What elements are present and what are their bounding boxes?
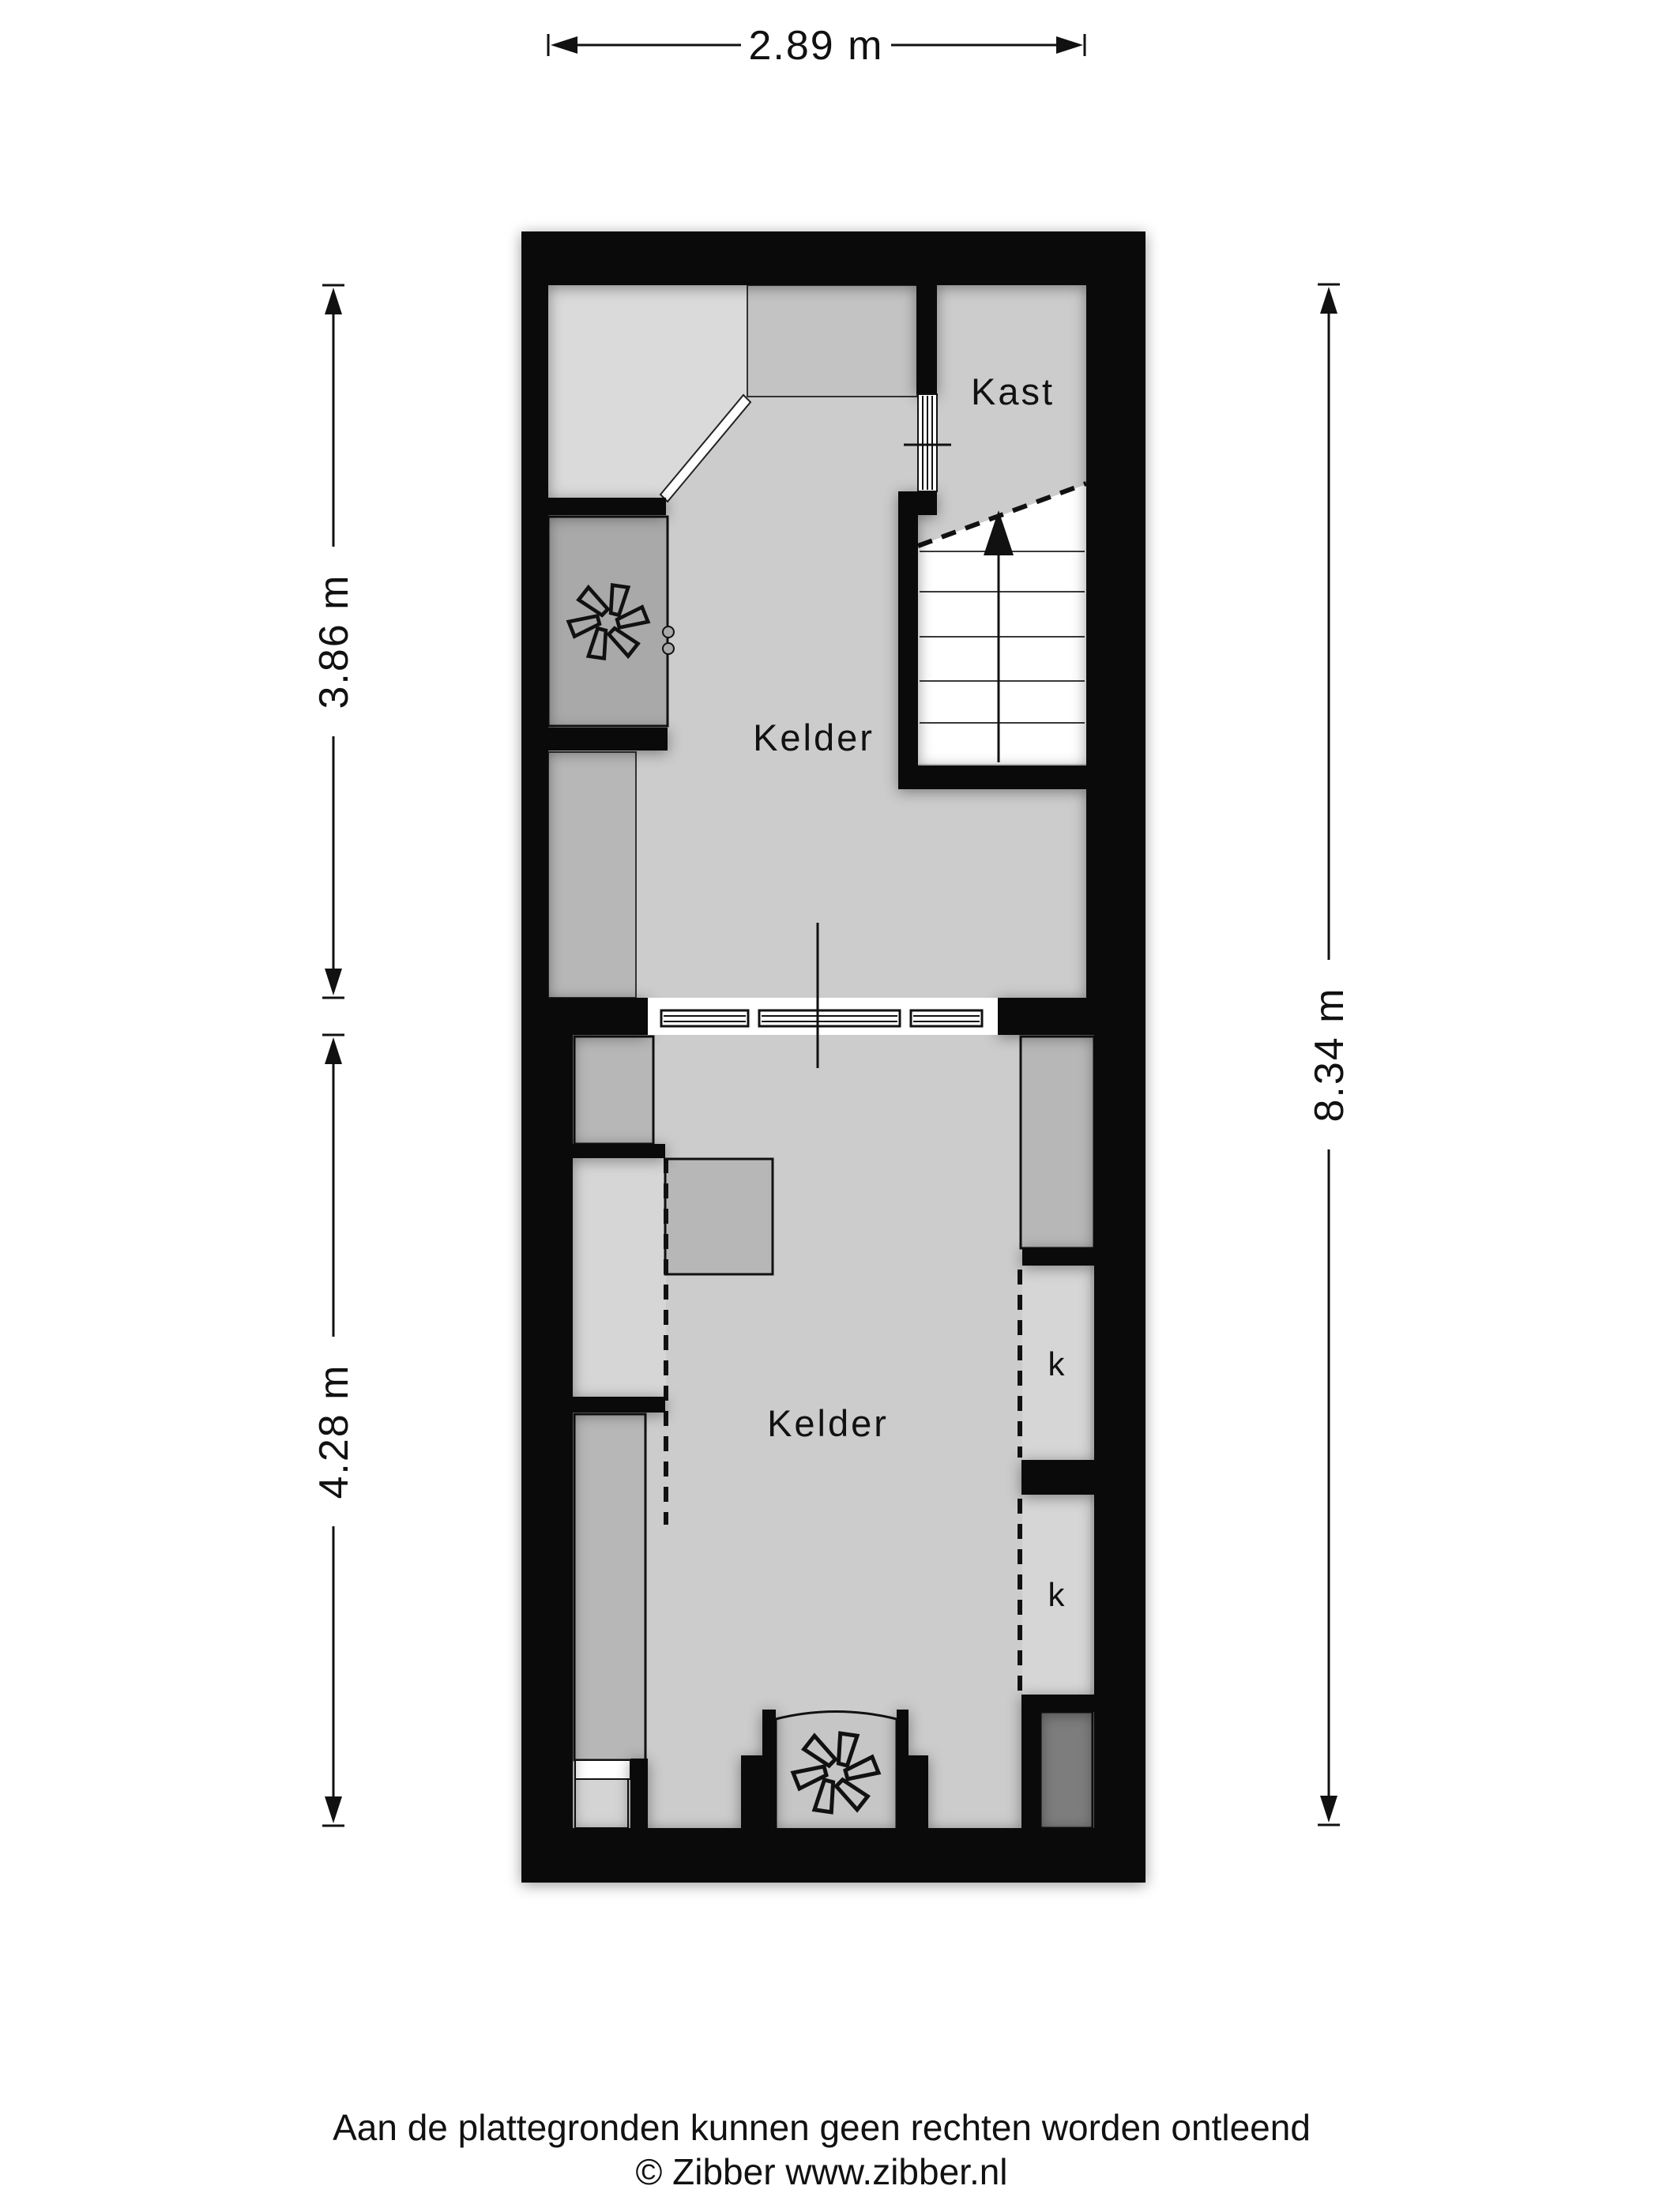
room-label-closet-lower: k — [1048, 1576, 1066, 1613]
footer-disclaimer: Aan de plattegronden kunnen geen rechten… — [333, 2107, 1311, 2148]
outer-wall-left-upper — [521, 285, 548, 998]
room-label-kelder-lower: Kelder — [767, 1402, 889, 1444]
dimension-left-upper: 3.86 m — [311, 285, 357, 998]
dimension-left-lower: 4.28 m — [311, 1035, 357, 1826]
dimension-top: 2.89 m — [548, 23, 1085, 69]
hinge-bump — [663, 643, 674, 654]
counter-strip-left — [574, 1414, 645, 1760]
page: Kelder Kast Kelder k k 2.89 m 3.86 m 4.2… — [0, 0, 1659, 2212]
fan-room-top-wall — [521, 498, 666, 515]
outer-wall-left-lower — [521, 1035, 573, 1828]
stair-left-wall — [898, 515, 918, 766]
room-label-kast: Kast — [971, 371, 1055, 412]
niche-floor — [573, 1158, 666, 1397]
outer-wall-right-upper — [1086, 285, 1145, 998]
dim-arrowhead-left — [551, 36, 577, 54]
dark-block-corner — [1040, 1712, 1093, 1828]
closet-bottom-wall — [1021, 1695, 1094, 1712]
dim-label-left-upper: 3.86 m — [311, 574, 357, 709]
cabinet-left — [574, 1036, 653, 1144]
table-block — [665, 1159, 773, 1274]
stair-bottom-wall — [898, 766, 1086, 789]
dim-label-left-lower: 4.28 m — [311, 1364, 357, 1499]
cabinet-right — [1021, 1036, 1094, 1248]
alcove-pillar — [741, 1755, 762, 1830]
outer-wall-top — [521, 231, 1145, 285]
footer-copyright: © Zibber www.zibber.nl — [635, 2151, 1007, 2192]
band-wall-right — [998, 998, 1145, 1035]
floor-plan-svg: Kelder Kast Kelder k k 2.89 m 3.86 m 4.2… — [0, 0, 1659, 2212]
storage-strip-upper — [548, 752, 636, 998]
window-symbol — [661, 1010, 982, 1026]
alcove-pillar — [897, 1710, 908, 1830]
step-block-white — [575, 1760, 630, 1779]
room-label-kelder-upper: Kelder — [753, 717, 875, 758]
outer-wall-bottom — [521, 1828, 1145, 1883]
dim-arrowhead-right — [1056, 36, 1083, 54]
dim-label-right: 8.34 m — [1307, 987, 1352, 1123]
wall-bar-bottom-left — [630, 1759, 648, 1828]
dimension-right: 8.34 m — [1307, 284, 1352, 1825]
step-block-light — [575, 1779, 628, 1828]
band-wall-left — [521, 998, 648, 1035]
door-jamb-wall — [916, 285, 937, 394]
room-label-closet-upper: k — [1048, 1345, 1066, 1382]
wall-under-cabinet-right — [1022, 1248, 1094, 1266]
door-step-wall — [898, 491, 937, 515]
room-topcenter-floor — [747, 285, 917, 397]
wall-stub-a — [573, 1144, 665, 1158]
closet-separator-wall — [1021, 1460, 1094, 1495]
dim-label-top: 2.89 m — [749, 23, 884, 69]
alcove-pillar — [908, 1755, 928, 1830]
footer: Aan de plattegronden kunnen geen rechten… — [333, 2107, 1311, 2192]
alcove-pillar — [762, 1710, 776, 1830]
corner-wall-right — [1021, 1712, 1040, 1828]
hinge-bump — [663, 626, 674, 638]
wall-stub-b — [573, 1397, 665, 1413]
fan-room-bottom-wall — [521, 728, 668, 750]
outer-wall-right-lower — [1094, 1035, 1145, 1828]
